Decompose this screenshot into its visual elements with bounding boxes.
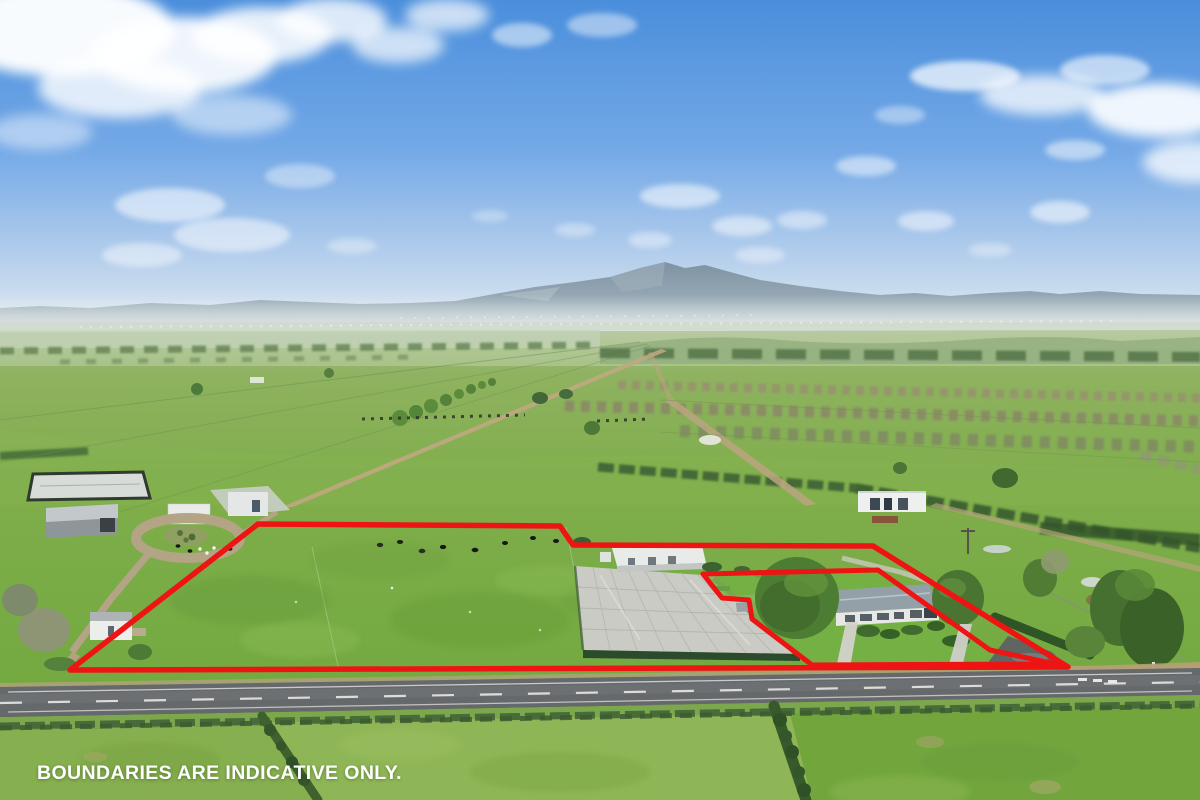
feed-pad [28, 472, 150, 500]
barn [46, 504, 118, 538]
scene-canvas [0, 0, 1200, 800]
farm-house [826, 584, 939, 626]
disclaimer-text: BOUNDARIES ARE INDICATIVE ONLY. [37, 762, 402, 785]
aerial-photo: BOUNDARIES ARE INDICATIVE ONLY. [0, 0, 1200, 800]
trailer [872, 516, 898, 523]
